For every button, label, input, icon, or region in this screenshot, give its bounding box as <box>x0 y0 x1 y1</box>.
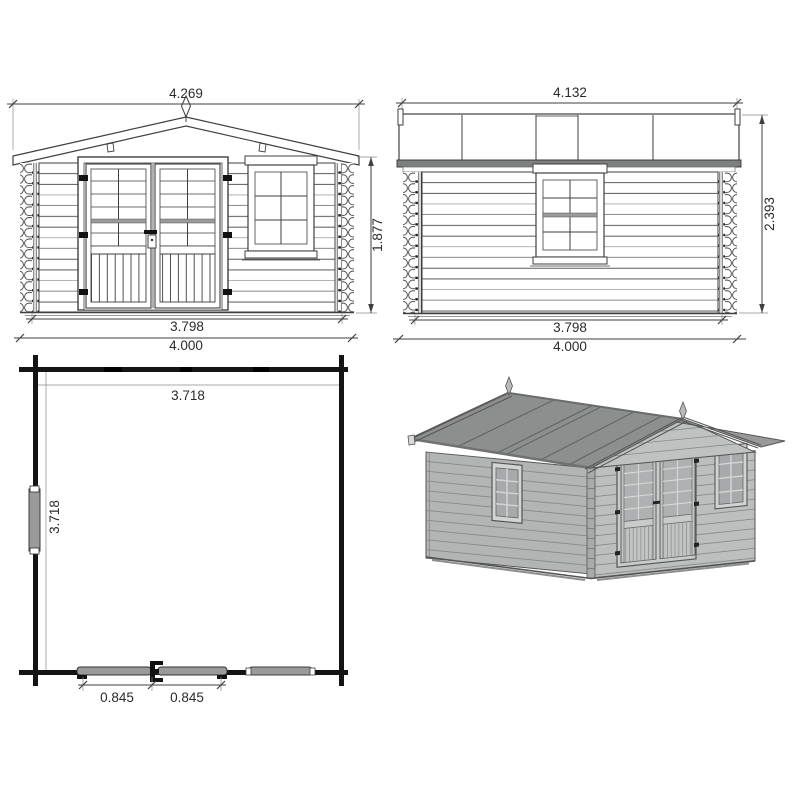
perspective-view <box>408 377 785 580</box>
front-roof <box>13 96 359 165</box>
plan-dim-inner-width: 3.718 <box>38 385 339 403</box>
side-overall-width-label: 4.132 <box>553 85 587 100</box>
front-dim-wall-width: 3.798 <box>26 313 348 334</box>
persp-finial-far <box>506 377 513 395</box>
plan-inner-depth-label: 3.718 <box>47 500 62 534</box>
side-wall-width-label: 3.798 <box>553 320 587 335</box>
persp-corner-log-ends <box>587 468 595 578</box>
front-door-left-leaf <box>86 164 151 308</box>
side-roof <box>397 109 741 172</box>
plan-left-window <box>29 486 40 554</box>
front-elevation-view: 4.269 <box>7 86 385 353</box>
side-dim-wall-width: 3.798 <box>409 314 728 335</box>
side-dim-height: 2.393 <box>739 115 777 313</box>
plan-door-left-label: 0.845 <box>100 690 134 705</box>
front-height-label: 1.877 <box>370 218 385 252</box>
plan-door-right-label: 0.845 <box>170 690 204 705</box>
front-rafter-tail-left <box>107 143 114 152</box>
floor-plan-view: 3.718 3.718 <box>19 355 348 705</box>
front-dim-base-width: 4.000 <box>14 334 358 353</box>
plan-dim-inner-depth: 3.718 <box>46 372 62 670</box>
front-base-width-label: 4.000 <box>169 338 203 353</box>
plan-bottom-window <box>246 667 315 675</box>
side-dim-overall-width: 4.132 <box>396 85 743 110</box>
shed-technical-drawing: 4.269 <box>0 0 794 794</box>
side-window <box>530 164 610 266</box>
front-window <box>242 156 320 260</box>
persp-side-window <box>492 462 522 523</box>
front-overall-width-label: 4.269 <box>169 86 203 101</box>
persp-finial-near <box>680 402 687 420</box>
side-base-width-label: 4.000 <box>553 339 587 354</box>
plan-walls <box>19 355 348 686</box>
front-door-right-leaf <box>155 164 220 308</box>
front-double-door <box>78 157 232 310</box>
front-dim-height: 1.877 <box>356 157 385 313</box>
front-wall-width-label: 3.798 <box>170 319 204 334</box>
drawing-sheet: 4.269 <box>0 0 794 794</box>
side-dim-base-width: 4.000 <box>393 335 746 354</box>
persp-side-wall <box>426 452 591 574</box>
side-elevation-view: 4.132 <box>393 85 777 354</box>
side-height-label: 2.393 <box>762 197 777 231</box>
plan-inner-width-label: 3.718 <box>171 388 205 403</box>
plan-dim-door-leaves: 0.845 0.845 <box>78 677 226 705</box>
